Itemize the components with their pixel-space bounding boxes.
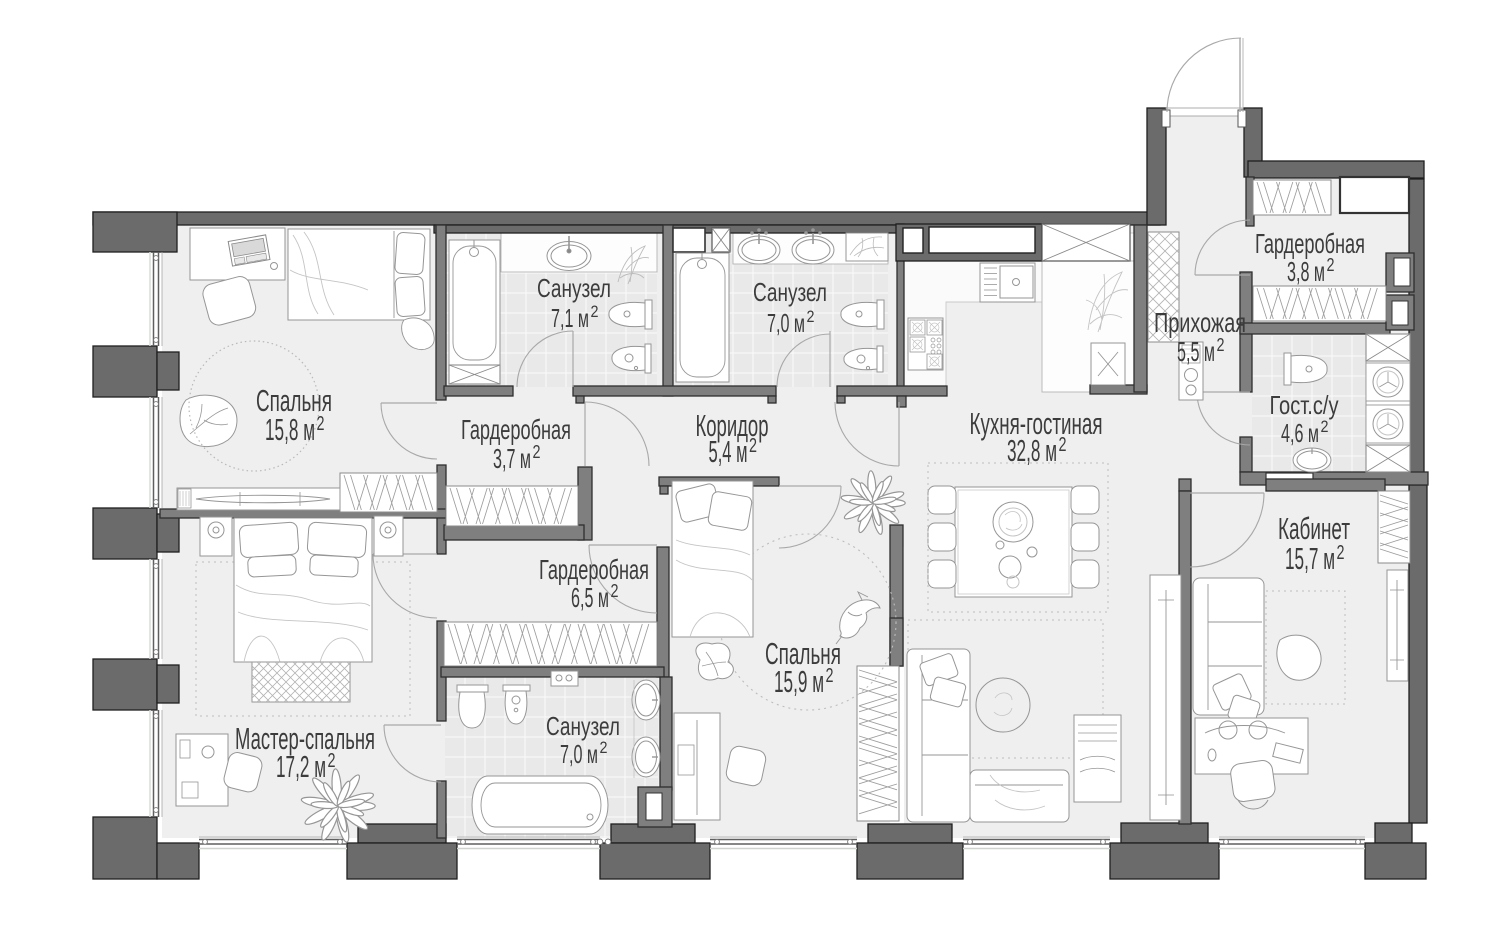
svg-text:2: 2 [328, 750, 336, 772]
svg-text:7,1 м: 7,1 м [551, 303, 589, 333]
svg-text:6,5 м: 6,5 м [571, 582, 609, 613]
svg-text:15,7 м: 15,7 м [1285, 541, 1335, 576]
svg-text:15,9 м: 15,9 м [774, 664, 824, 699]
svg-text:2: 2 [1321, 417, 1329, 436]
svg-text:2: 2 [1327, 255, 1335, 275]
svg-text:32,8 м: 32,8 м [1007, 433, 1057, 468]
svg-text:2: 2 [1337, 542, 1345, 564]
svg-text:Гардеробная: Гардеробная [461, 414, 571, 445]
svg-text:7,0 м: 7,0 м [767, 308, 805, 338]
svg-text:Гардеробная: Гардеробная [1255, 228, 1365, 259]
svg-text:Санузел: Санузел [546, 711, 620, 741]
svg-text:Гардеробная: Гардеробная [539, 554, 649, 585]
svg-text:2: 2 [611, 581, 619, 601]
svg-text:5,5 м: 5,5 м [1177, 336, 1215, 367]
svg-text:15,8 м: 15,8 м [265, 412, 315, 447]
svg-text:3,8 м: 3,8 м [1287, 256, 1325, 287]
svg-text:2: 2 [533, 442, 541, 462]
svg-text:Санузел: Санузел [537, 273, 611, 303]
svg-text:2: 2 [317, 413, 325, 435]
svg-text:4,6 м: 4,6 м [1281, 418, 1319, 448]
svg-text:2: 2 [591, 302, 599, 321]
svg-text:Санузел: Санузел [753, 277, 827, 307]
svg-text:2: 2 [600, 738, 608, 757]
svg-text:17,2 м: 17,2 м [276, 749, 326, 784]
svg-text:2: 2 [1217, 335, 1225, 355]
svg-text:5,4 м: 5,4 м [709, 434, 748, 469]
svg-text:2: 2 [1059, 434, 1067, 456]
svg-text:Прихожая: Прихожая [1154, 307, 1246, 338]
svg-text:2: 2 [807, 307, 815, 326]
svg-text:2: 2 [826, 665, 834, 687]
svg-text:2: 2 [749, 435, 757, 457]
svg-text:Гост.с/у: Гост.с/у [1270, 390, 1339, 420]
svg-text:7,0 м: 7,0 м [560, 739, 598, 769]
svg-text:3,7 м: 3,7 м [493, 443, 531, 474]
